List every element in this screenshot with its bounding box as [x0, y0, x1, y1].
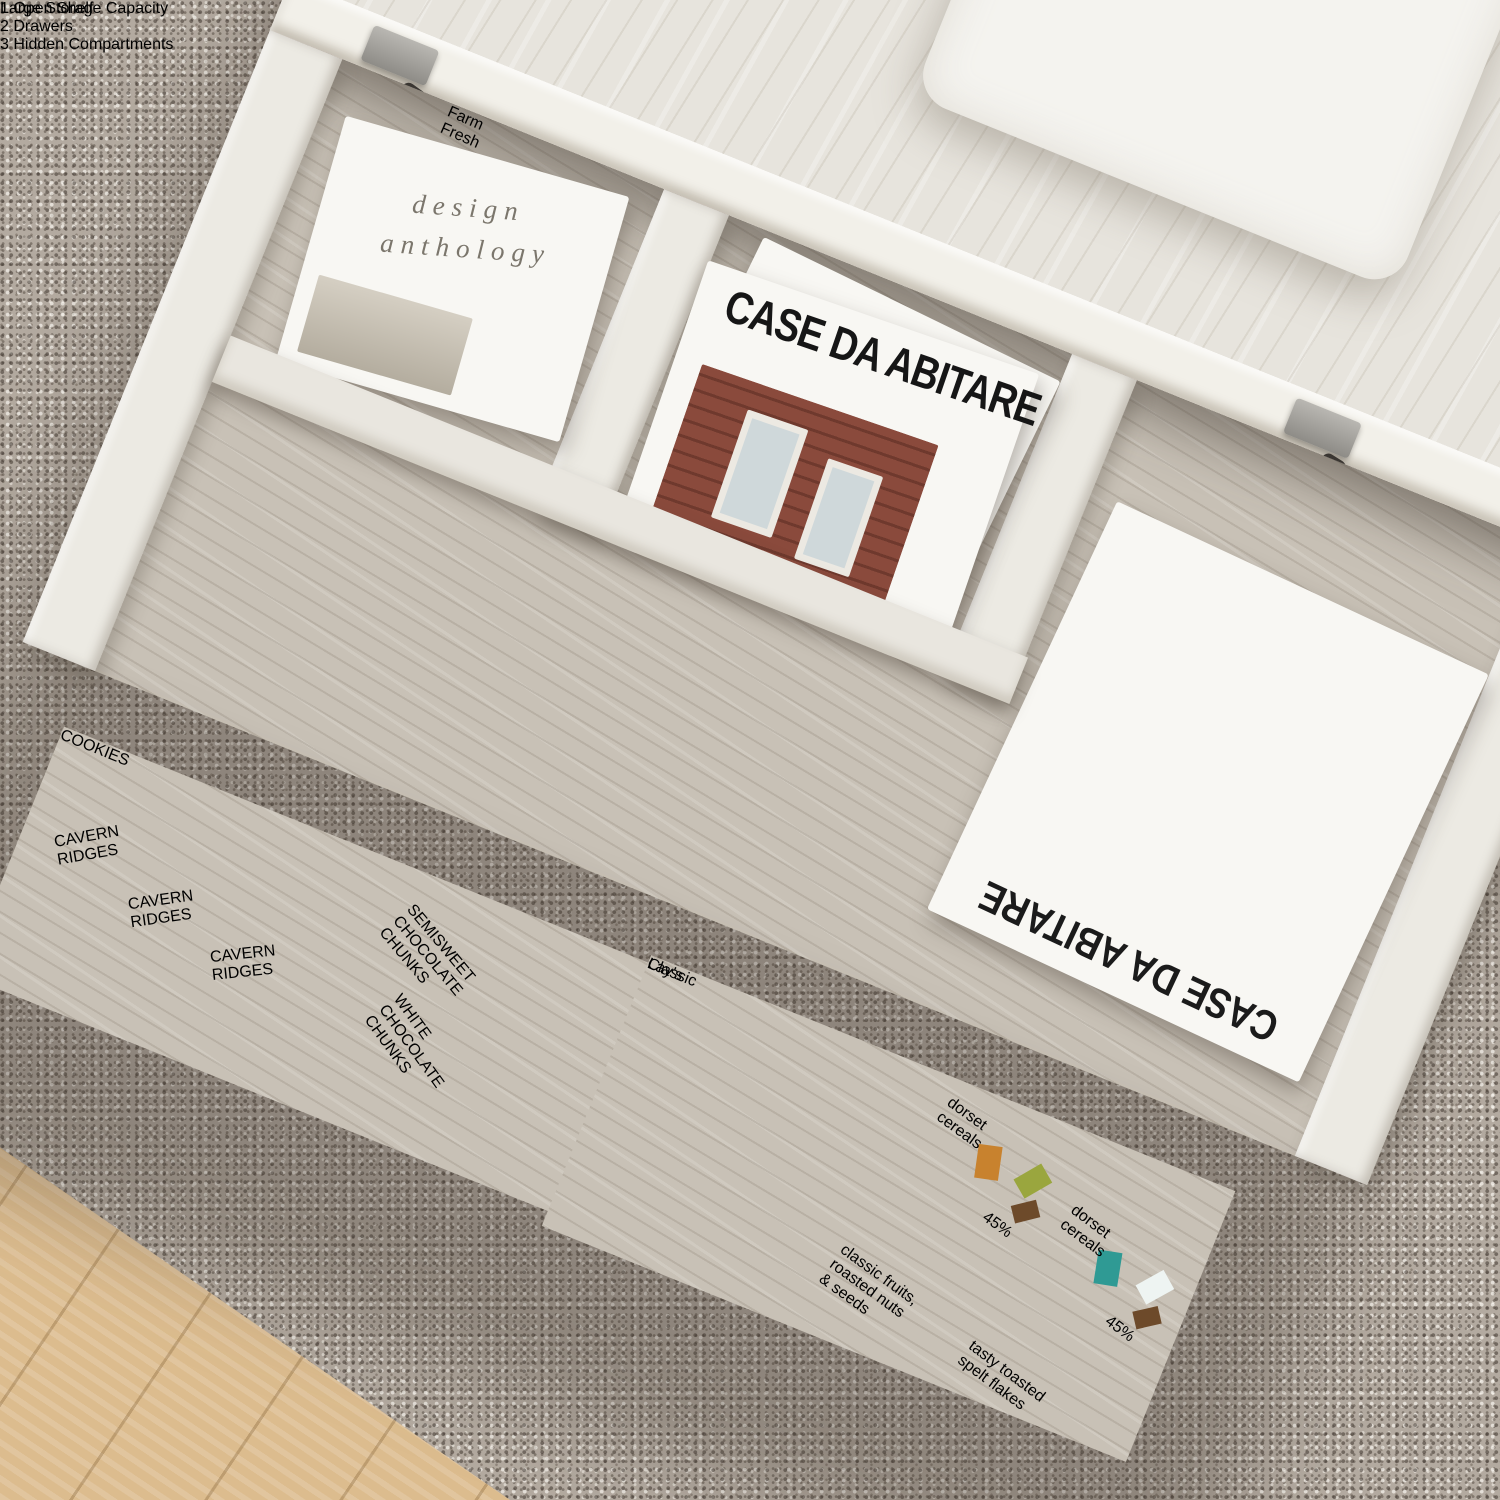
product-image: design anthology CASE DA ABITARE CASE DA… — [0, 0, 1500, 1500]
leaf-icon — [1136, 1270, 1175, 1305]
white-tray — [912, 0, 1500, 290]
coffee-table: design anthology CASE DA ABITARE CASE DA… — [0, 30, 1500, 1500]
leaf-icon — [1011, 1200, 1041, 1224]
green-pack-label: CAVERN RIDGES — [53, 823, 124, 870]
feature-label: 1 Open Shelf — [0, 0, 93, 17]
green-pack-label: CAVERN RIDGES — [127, 887, 197, 932]
leaf-icon — [1132, 1306, 1161, 1329]
feature-item: 1 Open Shelf — [0, 0, 173, 18]
feature-list: 1 Open Shelf 2 Drawers 3 Hidden Compartm… — [0, 0, 173, 54]
cookie-box-label: SEMISWEET CHOCOLATE CHUNKS — [375, 901, 480, 1011]
feature-label: 2 Drawers — [0, 18, 73, 35]
leaf-icon — [1014, 1164, 1053, 1199]
wooden-lid-jar — [741, 1051, 863, 1173]
cover-window — [794, 458, 883, 577]
cereal-badge: 45% — [1101, 1313, 1137, 1347]
feature-item: 3 Hidden Compartments — [0, 36, 173, 54]
green-pack-label: CAVERN RIDGES — [209, 942, 278, 985]
feature-label: 3 Hidden Compartments — [0, 36, 173, 53]
leaf-icon — [974, 1144, 1002, 1181]
cereal-badge: 45% — [979, 1209, 1015, 1242]
feature-item: 2 Drawers — [0, 18, 173, 36]
flipped-magazine-photo — [1029, 605, 1400, 959]
cookie-box-label: WHITE CHOCOLATE CHUNKS — [360, 991, 462, 1102]
cover-window — [711, 409, 809, 538]
cereal-desc: classic fruits, roasted nuts & seeds — [815, 1241, 921, 1339]
